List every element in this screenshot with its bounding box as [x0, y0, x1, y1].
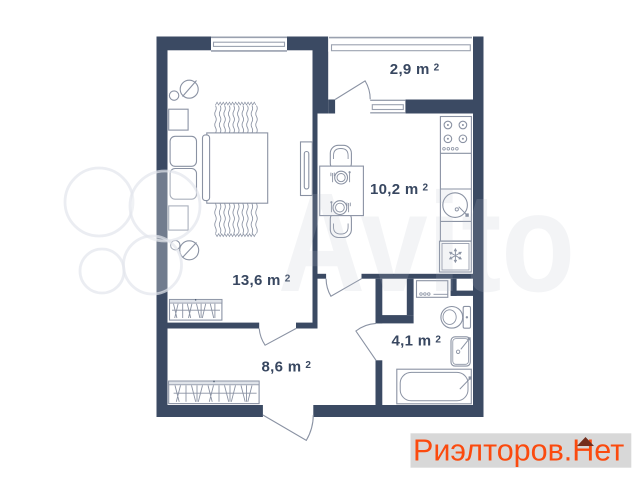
svg-text:Avito: Avito — [278, 163, 575, 321]
svg-text:Риэлторов.Нет: Риэлторов.Нет — [413, 434, 624, 468]
